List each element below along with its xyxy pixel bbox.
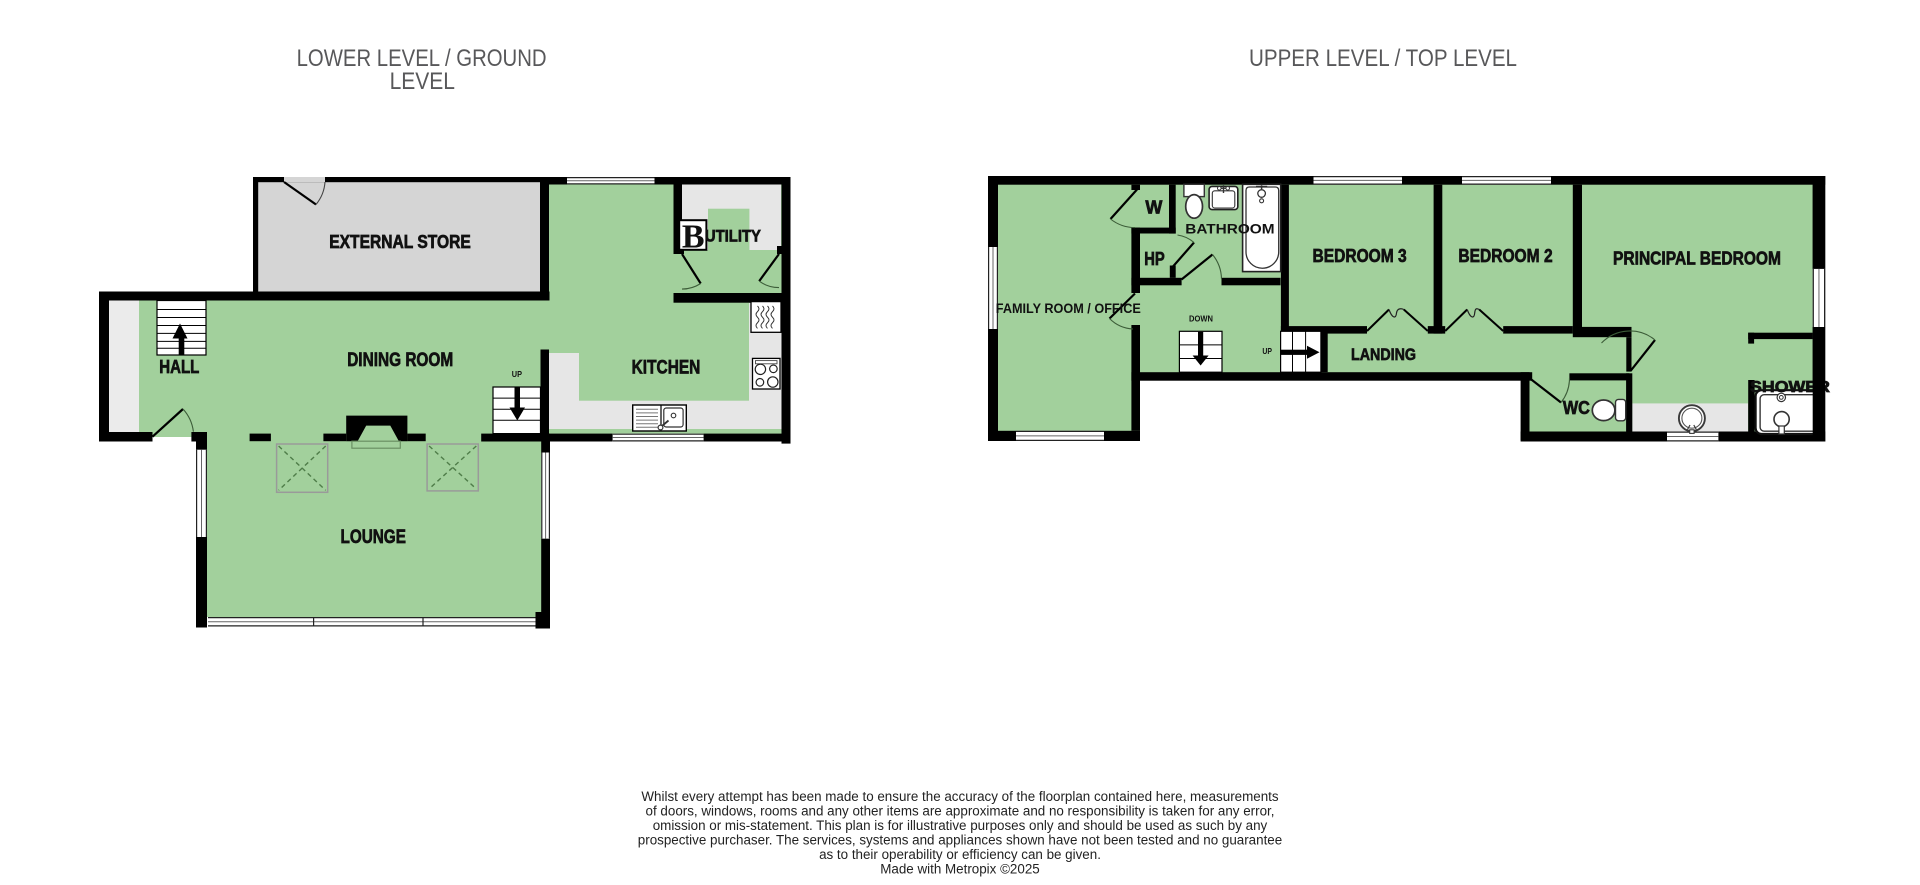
svg-text:BEDROOM 3: BEDROOM 3: [1313, 246, 1407, 266]
svg-text:prospective purchaser. The ser: prospective purchaser. The services, sys…: [638, 833, 1282, 848]
svg-text:FAMILY ROOM / OFFICE: FAMILY ROOM / OFFICE: [996, 301, 1141, 316]
svg-text:WC: WC: [1563, 398, 1590, 418]
svg-text:LANDING: LANDING: [1351, 345, 1416, 364]
svg-text:LEVEL: LEVEL: [390, 68, 455, 95]
svg-text:UTILITY: UTILITY: [705, 227, 762, 246]
svg-text:B: B: [682, 218, 705, 255]
svg-text:BATHROOM: BATHROOM: [1185, 222, 1274, 237]
svg-text:Whilst every attempt has been: Whilst every attempt has been made to en…: [641, 789, 1278, 804]
svg-text:DOWN: DOWN: [1189, 314, 1213, 324]
svg-text:PRINCIPAL BEDROOM: PRINCIPAL BEDROOM: [1613, 248, 1781, 268]
svg-text:of doors, windows, rooms and a: of doors, windows, rooms and any other i…: [646, 803, 1275, 818]
svg-text:HP: HP: [1144, 249, 1165, 269]
svg-text:UP: UP: [512, 369, 522, 379]
svg-text:W: W: [1145, 198, 1162, 218]
svg-text:DINING ROOM: DINING ROOM: [347, 350, 453, 371]
svg-text:UP: UP: [1262, 346, 1272, 356]
svg-text:BEDROOM 2: BEDROOM 2: [1458, 246, 1552, 266]
svg-text:omission or mis-statement. Thi: omission or mis-statement. This plan is …: [653, 818, 1268, 833]
svg-text:HALL: HALL: [159, 357, 199, 377]
svg-text:UPPER LEVEL / TOP LEVEL: UPPER LEVEL / TOP LEVEL: [1249, 45, 1517, 72]
svg-text:LOUNGE: LOUNGE: [341, 527, 406, 548]
svg-text:as to their operability or eff: as to their operability or efficiency ca…: [819, 847, 1101, 862]
svg-text:EXTERNAL STORE: EXTERNAL STORE: [329, 232, 471, 252]
svg-text:Made with Metropix ©2025: Made with Metropix ©2025: [880, 862, 1039, 877]
svg-text:KITCHEN: KITCHEN: [632, 357, 701, 378]
